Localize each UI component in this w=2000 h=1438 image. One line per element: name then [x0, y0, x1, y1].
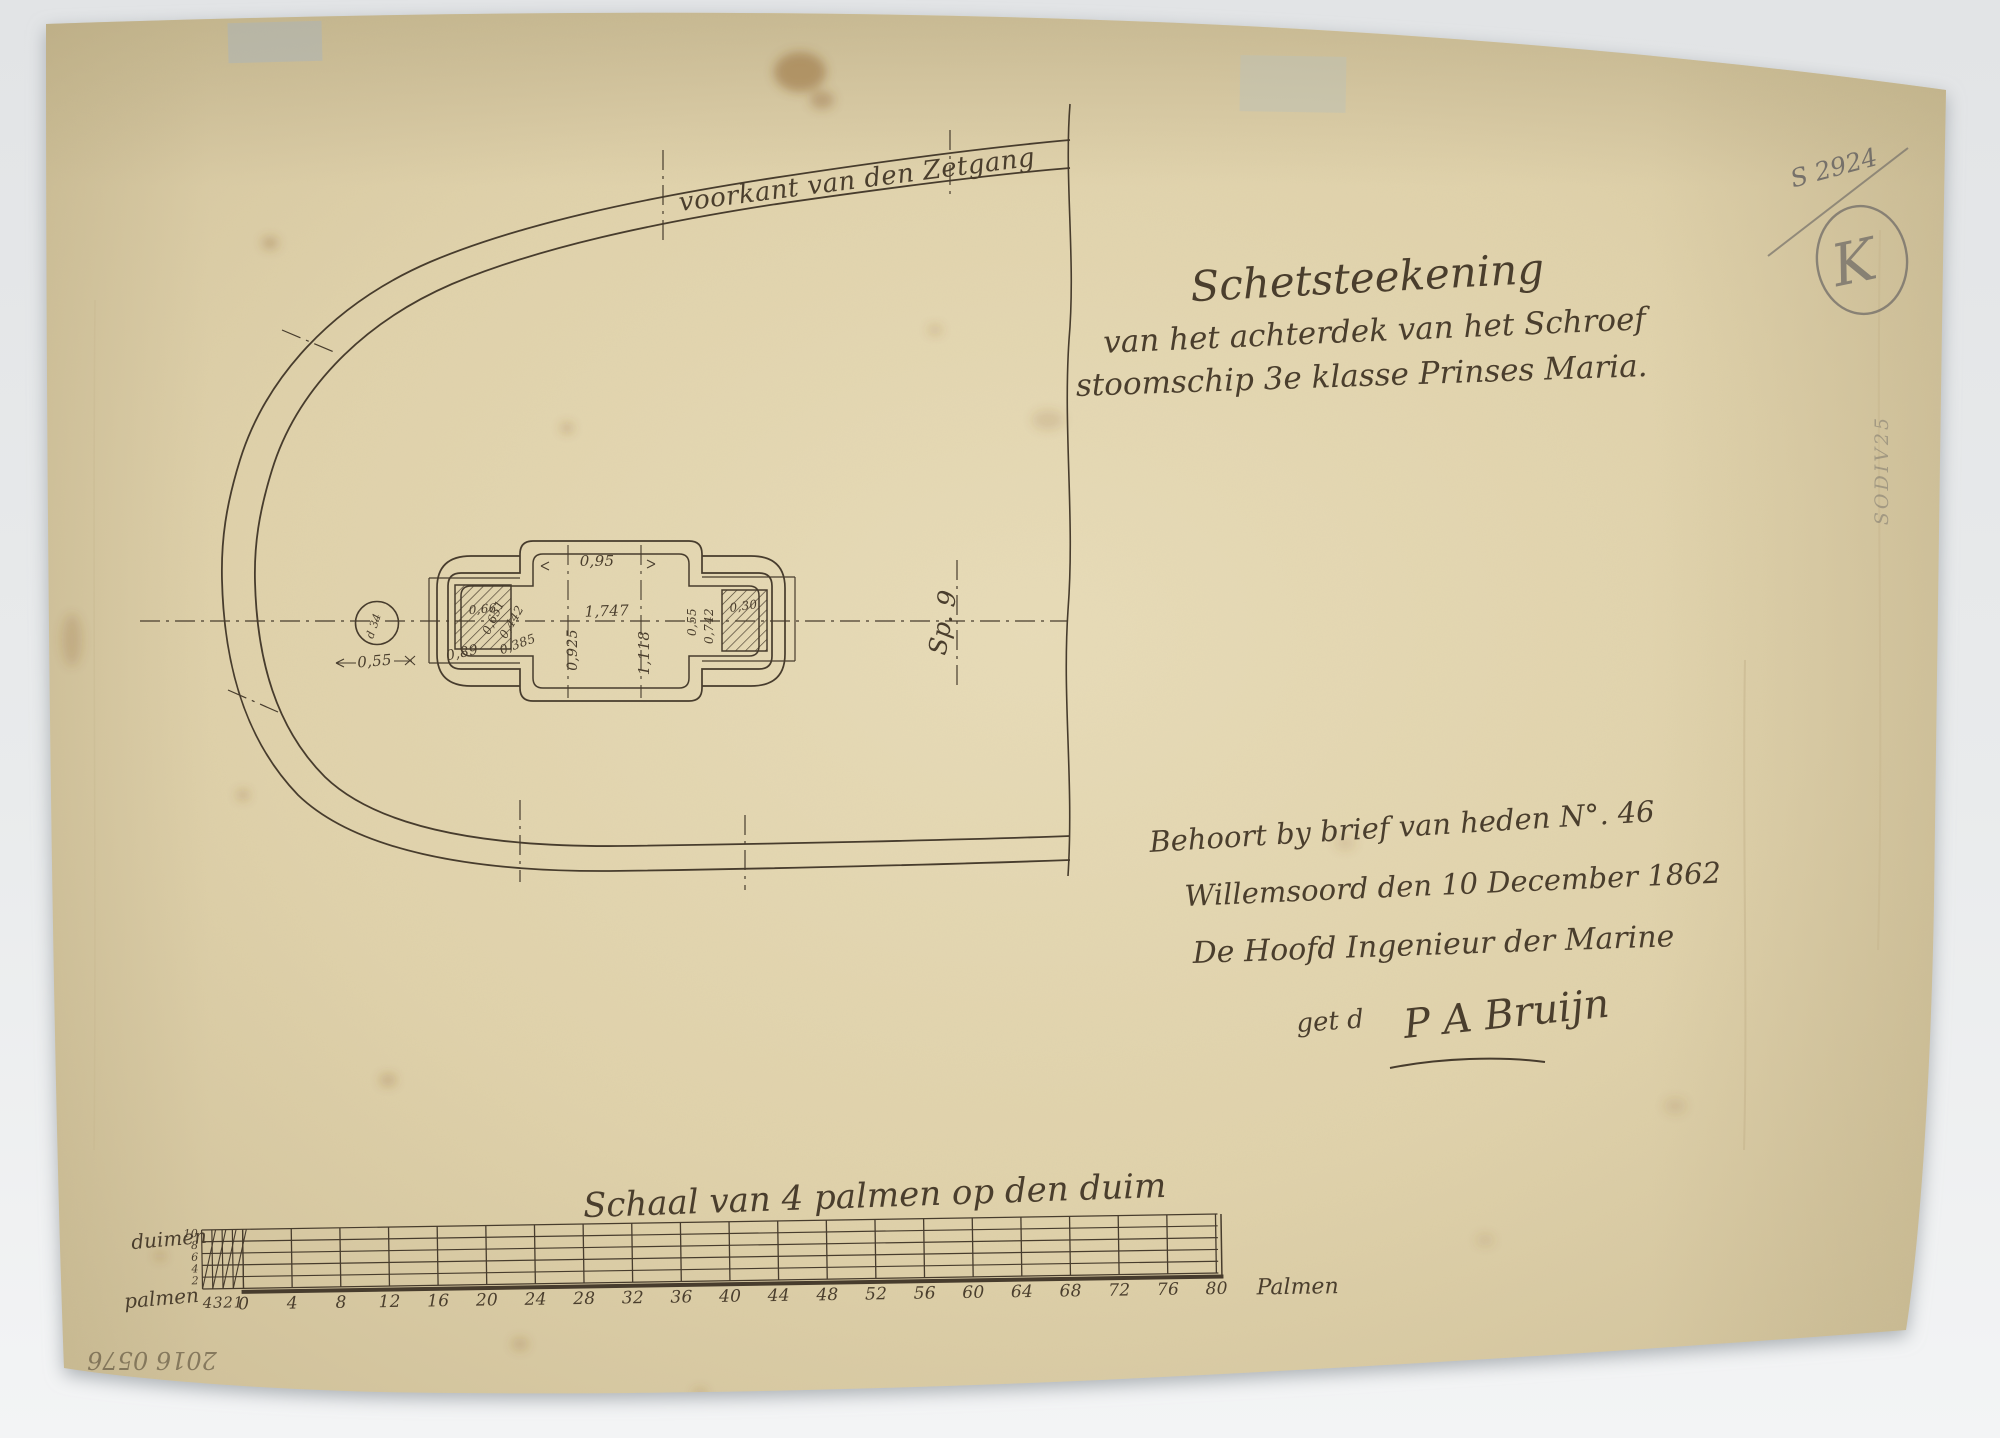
scale-tick-label: 68	[1059, 1281, 1082, 1301]
scale-grid-line	[1118, 1216, 1119, 1275]
dim-left-block: 0,66	[468, 601, 497, 617]
inventory-number: 2016 0576	[87, 1346, 218, 1374]
scale-tick-label: 12	[378, 1292, 401, 1312]
scale-grid-line	[972, 1218, 973, 1277]
scale-tick-label: 76	[1157, 1280, 1180, 1300]
scale-grid-line	[389, 1227, 390, 1286]
scale-unit-palmen-right: Palmen	[1255, 1274, 1338, 1300]
scale-tick-label: 52	[865, 1284, 888, 1304]
scale-grid-line	[778, 1221, 779, 1280]
left-bearing-block	[455, 585, 511, 649]
scale-tick-label: 56	[914, 1283, 937, 1303]
scale-grid-line	[291, 1229, 292, 1288]
scale-grid-line	[924, 1219, 925, 1278]
scale-tick-label: 48	[815, 1285, 839, 1305]
dim-shaft-offset: 0,55	[357, 651, 393, 672]
dim-top-width: 0,95	[580, 552, 615, 570]
scale-tick-label: 4	[202, 1294, 213, 1312]
edge-inscription: SODIV25	[1871, 415, 1893, 525]
scale-grid-line	[1167, 1215, 1168, 1274]
scale-tick-label: 32	[622, 1288, 645, 1308]
scale-grid-line	[826, 1220, 827, 1279]
signature-prefix: get d	[1295, 1004, 1364, 1039]
scale-tick-label: 2	[222, 1293, 233, 1311]
scale-grid-line	[1215, 1214, 1216, 1273]
scale-grid-line	[680, 1222, 681, 1281]
scale-tick-label: 3	[213, 1294, 223, 1312]
dim-height-right: 1,118	[635, 631, 653, 675]
scale-grid-line	[340, 1228, 341, 1287]
scale-grid-line	[534, 1225, 535, 1284]
scale-tick-label: 72	[1108, 1280, 1131, 1300]
scale-tick-label: 8	[335, 1293, 346, 1313]
scale-tick-label: 80	[1205, 1279, 1228, 1299]
scale-grid-line	[729, 1222, 730, 1281]
scale-grid-line	[1221, 1214, 1222, 1277]
scale-grid-line	[875, 1219, 876, 1278]
scale-grid-line	[1070, 1216, 1071, 1275]
scale-grid-line	[486, 1226, 487, 1285]
scale-tick-label: 16	[427, 1291, 450, 1311]
dim-height-left: 0,925	[565, 629, 581, 671]
scale-tick-label: 1	[233, 1293, 243, 1311]
scale-tick-label: 28	[572, 1289, 596, 1309]
scale-tick-label: 40	[718, 1287, 742, 1307]
scale-tick-label: 44	[767, 1286, 791, 1306]
dim-mid-width: 1,747	[584, 601, 629, 621]
scale-grid-line	[1021, 1217, 1022, 1276]
scale-tick-label: 60	[962, 1283, 985, 1303]
tape-top-center	[1240, 55, 1347, 113]
tape-top-left	[227, 21, 322, 63]
dim-right-width: 0,742	[702, 608, 716, 644]
dim-right-gap: 0,55	[685, 608, 699, 636]
scale-tick-label: 4	[286, 1293, 298, 1313]
scanned-drawing: 0,95 1,747 0,925 1,118 0,651 0,442 0,385…	[0, 0, 2000, 1438]
scale-tick-label: 64	[1011, 1282, 1034, 1302]
scale-grid-line	[632, 1223, 633, 1282]
scale-tick-label: 36	[670, 1287, 693, 1307]
scale-grid-line	[437, 1226, 438, 1285]
scale-tick-label: 24	[523, 1290, 547, 1310]
scale-grid-line	[583, 1224, 584, 1283]
scale-tick-label: 20	[475, 1290, 499, 1310]
